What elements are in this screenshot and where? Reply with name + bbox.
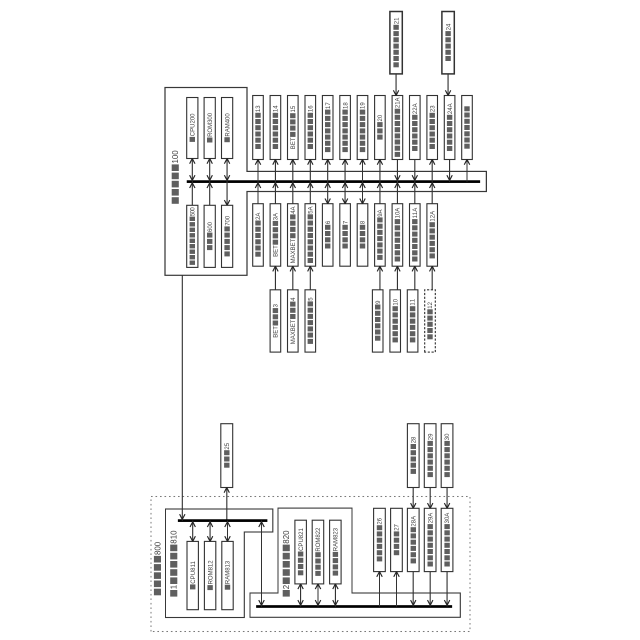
svg-text:20: 20 <box>378 114 384 121</box>
svg-text:RAM823: RAM823 <box>334 527 340 551</box>
svg-text:30A: 30A <box>445 513 451 524</box>
svg-text:2A: 2A <box>256 213 262 220</box>
svg-text:23: 23 <box>430 105 436 112</box>
svg-text:29A: 29A <box>428 513 434 524</box>
svg-text:100: 100 <box>171 150 180 164</box>
svg-text:24A: 24A <box>448 103 454 114</box>
svg-text:BET: BET <box>291 137 297 149</box>
svg-text:12A: 12A <box>430 211 436 222</box>
svg-text:810: 810 <box>170 530 179 544</box>
svg-text:4A: 4A <box>291 207 297 214</box>
svg-text:CPU811: CPU811 <box>191 560 197 583</box>
svg-text:RAM813: RAM813 <box>226 560 232 584</box>
svg-text:CPU200: CPU200 <box>191 113 197 136</box>
svg-text:2: 2 <box>282 585 291 589</box>
svg-text:11: 11 <box>411 298 417 305</box>
svg-text:16: 16 <box>308 105 314 112</box>
svg-text:13: 13 <box>256 105 262 112</box>
svg-text:15: 15 <box>291 105 297 112</box>
svg-text:19: 19 <box>361 102 367 109</box>
svg-text:14: 14 <box>274 105 280 112</box>
svg-text:11A: 11A <box>413 208 419 219</box>
svg-text:21A: 21A <box>396 98 402 109</box>
svg-text:MAXBET: MAXBET <box>291 319 297 344</box>
svg-text:29: 29 <box>428 433 434 440</box>
svg-text:10A: 10A <box>396 208 402 219</box>
svg-text:10: 10 <box>393 298 399 305</box>
svg-text:BET: BET <box>274 245 280 257</box>
svg-text:9A: 9A <box>378 210 384 217</box>
svg-text:ROM812: ROM812 <box>208 560 214 585</box>
svg-text:25: 25 <box>225 442 231 449</box>
svg-text:700: 700 <box>225 215 231 226</box>
svg-text:17: 17 <box>326 102 332 109</box>
svg-text:5A: 5A <box>308 206 314 213</box>
svg-text:800: 800 <box>153 541 162 555</box>
svg-text:1: 1 <box>170 585 179 589</box>
svg-text:ROM822: ROM822 <box>316 527 322 552</box>
svg-text:RAM400: RAM400 <box>225 113 231 137</box>
svg-text:18: 18 <box>343 102 349 109</box>
svg-text:24: 24 <box>446 23 452 30</box>
svg-text:21: 21 <box>394 17 400 24</box>
svg-text:27: 27 <box>395 523 401 530</box>
svg-text:26: 26 <box>378 517 384 524</box>
svg-text:28A: 28A <box>411 516 417 527</box>
svg-text:22A: 22A <box>413 103 419 114</box>
svg-text:CPU821: CPU821 <box>299 528 305 551</box>
svg-text:500: 500 <box>191 207 197 216</box>
svg-text:12: 12 <box>428 301 434 308</box>
svg-text:3A: 3A <box>274 213 280 220</box>
svg-text:600: 600 <box>208 221 214 232</box>
svg-text:MAXBET: MAXBET <box>291 238 297 263</box>
svg-text:BET: BET <box>274 326 280 338</box>
svg-text:820: 820 <box>282 530 291 544</box>
svg-text:30: 30 <box>445 433 451 440</box>
svg-text:28: 28 <box>411 436 417 443</box>
svg-text:ROM300: ROM300 <box>208 112 214 137</box>
